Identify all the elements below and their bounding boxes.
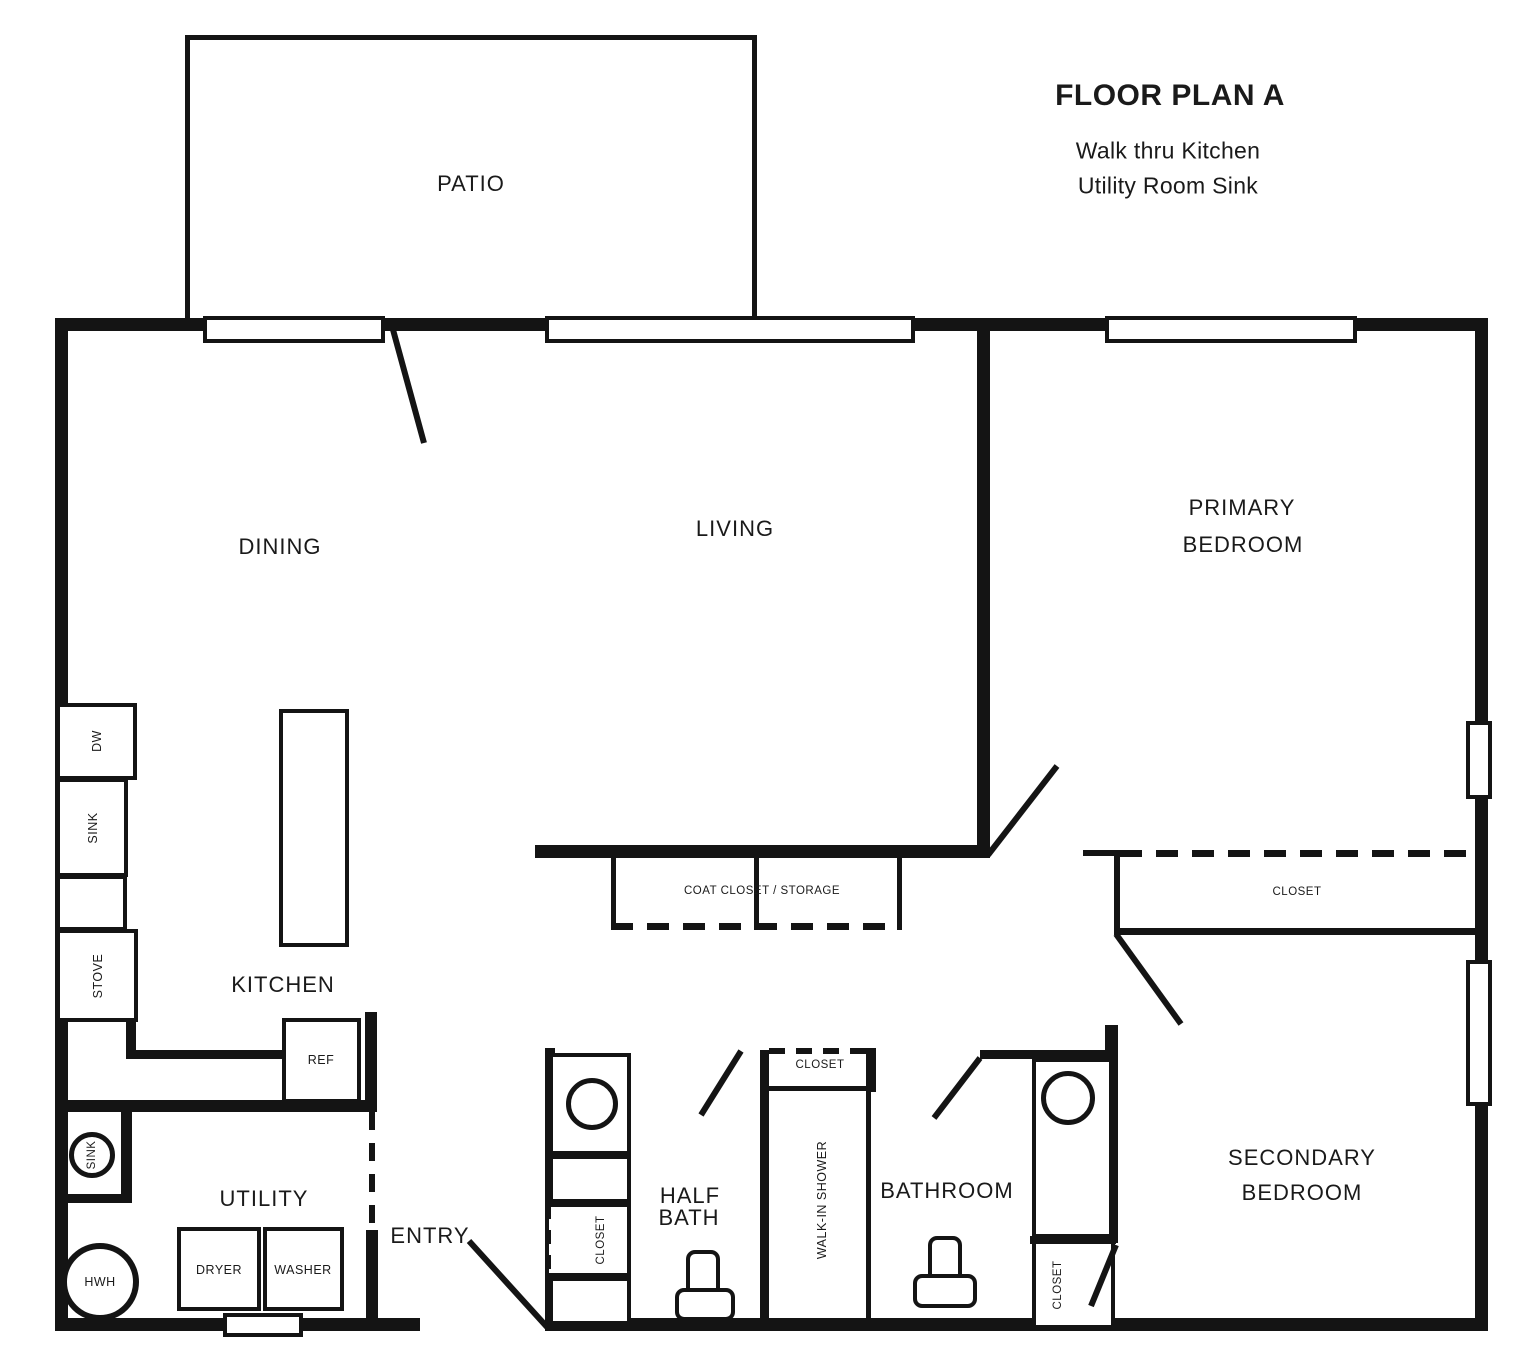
- living-window: [545, 316, 915, 343]
- water-heater-label: HWH: [84, 1275, 115, 1289]
- halfbath-closet-box: [549, 1203, 631, 1277]
- room-label-bathroom: BATHROOM: [880, 1178, 1013, 1204]
- shower-closet-label: CLOSET: [795, 1059, 844, 1071]
- refrigerator-label: REF: [308, 1053, 335, 1067]
- bathroom-toilet-tank: [913, 1274, 977, 1308]
- coat-closet-label: COAT CLOSET / STORAGE: [684, 885, 840, 897]
- kitchen-counter-horizontal: [126, 1050, 286, 1059]
- patio-wall-top: [185, 35, 757, 40]
- wall-living-primary: [977, 331, 990, 858]
- bathroom-closet-box: [1032, 1244, 1115, 1325]
- room-label-secondary-bedroom-1: SECONDARY: [1228, 1145, 1376, 1171]
- room-label-patio: PATIO: [437, 171, 505, 197]
- entry-utility-dashed-wall: [369, 1112, 375, 1230]
- room-label-dining: DINING: [239, 534, 322, 560]
- wall-exterior-east: [1475, 318, 1488, 1331]
- coat-closet-wall-left: [611, 858, 616, 930]
- kitchen-sink-label: SINK: [86, 812, 100, 843]
- bathroom-closet-label: CLOSET: [1052, 1260, 1064, 1309]
- utility-sink-closet-right: [121, 1106, 132, 1203]
- primary-bedroom-window-top: [1105, 316, 1357, 343]
- coat-closet-door-dashed: [611, 923, 902, 930]
- wall-halfbath-east: [760, 1050, 769, 1325]
- primary-bedroom-window-east: [1466, 721, 1492, 799]
- halfbath-toilet-tank: [675, 1288, 735, 1321]
- room-label-half-bath-2: BATH: [658, 1205, 719, 1231]
- secondary-closet-dashed-top: [1120, 850, 1475, 857]
- shower-closet-dashed-top: [769, 1048, 871, 1054]
- wall-entry-solid: [366, 1230, 378, 1325]
- utility-sink-label: SINK: [86, 1141, 98, 1170]
- secondary-closet-label: CLOSET: [1272, 886, 1321, 898]
- kitchen-counter-box: [56, 875, 127, 931]
- room-label-living: LIVING: [696, 516, 774, 542]
- utility-sink-closet-top: [55, 1106, 130, 1111]
- halfbath-closet-dashed-edge: [546, 1205, 551, 1277]
- walk-in-shower-label: WALK-IN SHOWER: [815, 1141, 829, 1259]
- secondary-bedroom-door-swing: [1116, 934, 1181, 1024]
- stove-label: STOVE: [91, 954, 105, 999]
- bathroom-vanity-counter-edge: [1030, 1236, 1116, 1244]
- room-label-utility: UTILITY: [220, 1186, 309, 1212]
- shower-wall-right: [866, 1091, 871, 1325]
- room-label-kitchen: KITCHEN: [231, 972, 335, 998]
- room-label-primary-bedroom-2: BEDROOM: [1183, 532, 1304, 558]
- entry-door-swing: [469, 1241, 547, 1327]
- room-label-entry: ENTRY: [390, 1223, 469, 1249]
- room-label-primary-bedroom-1: PRIMARY: [1189, 495, 1296, 521]
- halfbath-door-swing: [701, 1051, 741, 1115]
- kitchen-counter-vertical: [126, 1022, 136, 1059]
- dishwasher-label: DW: [90, 730, 104, 752]
- bathroom-door-swing: [934, 1058, 980, 1118]
- bathroom-sink-basin: [1041, 1071, 1095, 1125]
- wall-kitchen-entry: [365, 1012, 377, 1107]
- patio-wall-left: [185, 35, 190, 318]
- halfbath-sink-basin: [566, 1078, 618, 1130]
- room-label-secondary-bedroom-2: BEDROOM: [1242, 1180, 1363, 1206]
- utility-sink-closet-bottom: [55, 1194, 132, 1203]
- hall-wall-stub-vertical: [1114, 850, 1120, 935]
- secondary-bedroom-window-east: [1466, 960, 1492, 1106]
- washer-label: WASHER: [274, 1263, 331, 1277]
- plan-subtitle-1: Walk thru Kitchen: [1076, 138, 1260, 165]
- halfbath-vanity-bottom: [549, 1277, 631, 1325]
- secondary-closet-wall-bottom: [1114, 928, 1478, 935]
- halfbath-vanity-mid: [549, 1155, 631, 1203]
- primary-bedroom-door-swing: [988, 766, 1057, 855]
- patio-door-swing: [392, 326, 424, 443]
- utility-door-opening: [223, 1313, 303, 1337]
- halfbath-closet-label: CLOSET: [595, 1215, 607, 1264]
- shower-closet-wall-bottom: [769, 1086, 876, 1091]
- dryer-label: DRYER: [196, 1263, 242, 1277]
- wall-living-south: [535, 845, 990, 858]
- patio-wall-right: [752, 35, 757, 318]
- floor-plan: FLOOR PLAN A Walk thru Kitchen Utility R…: [0, 0, 1536, 1355]
- patio-door-opening: [203, 316, 385, 343]
- plan-subtitle-2: Utility Room Sink: [1078, 173, 1258, 200]
- kitchen-island: [279, 709, 349, 947]
- plan-title: FLOOR PLAN A: [1055, 79, 1285, 113]
- coat-closet-wall-right: [897, 858, 902, 930]
